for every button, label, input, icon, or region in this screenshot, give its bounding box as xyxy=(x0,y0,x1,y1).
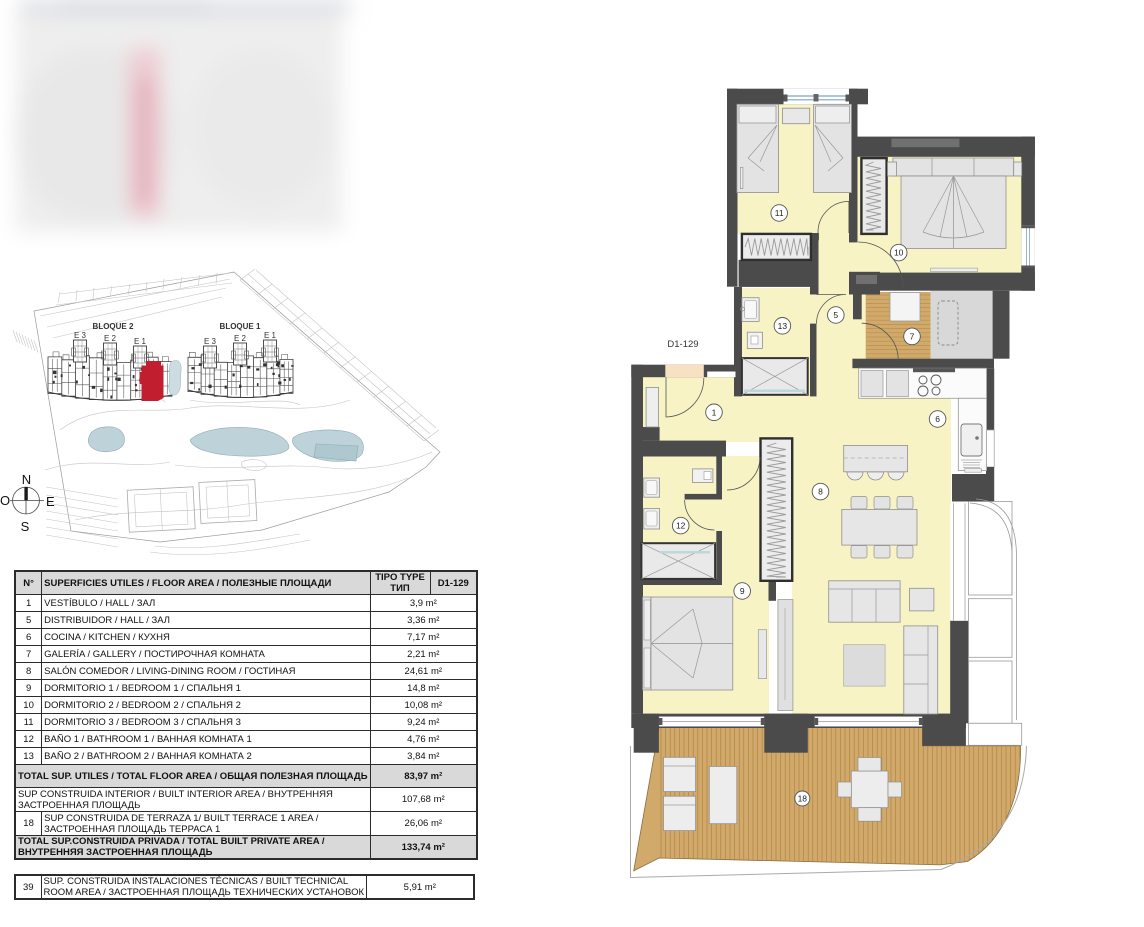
svg-text:12: 12 xyxy=(676,521,686,531)
svg-text:11: 11 xyxy=(775,208,784,218)
svg-text:E 3: E 3 xyxy=(204,337,217,346)
svg-text:E 1: E 1 xyxy=(134,337,147,346)
svg-text:8: 8 xyxy=(818,487,823,497)
svg-text:5: 5 xyxy=(833,310,838,320)
svg-text:E 1: E 1 xyxy=(264,331,277,340)
svg-text:7: 7 xyxy=(910,331,915,341)
svg-text:E 3: E 3 xyxy=(74,331,87,340)
svg-text:10: 10 xyxy=(894,248,904,258)
svg-text:18: 18 xyxy=(798,794,808,804)
svg-text:E 2: E 2 xyxy=(104,334,117,343)
svg-text:E 2: E 2 xyxy=(234,334,247,343)
svg-text:BLOQUE 1: BLOQUE 1 xyxy=(220,322,261,331)
svg-text:D1-129: D1-129 xyxy=(667,339,698,350)
svg-text:1: 1 xyxy=(712,407,717,417)
svg-text:N: N xyxy=(22,472,31,487)
svg-text:13: 13 xyxy=(778,321,788,331)
svg-text:E: E xyxy=(46,494,55,509)
svg-text:BLOQUE 2: BLOQUE 2 xyxy=(93,322,134,331)
svg-text:9: 9 xyxy=(740,586,745,596)
svg-text:O: O xyxy=(0,493,10,508)
svg-text:S: S xyxy=(21,519,30,534)
svg-text:6: 6 xyxy=(935,414,940,424)
